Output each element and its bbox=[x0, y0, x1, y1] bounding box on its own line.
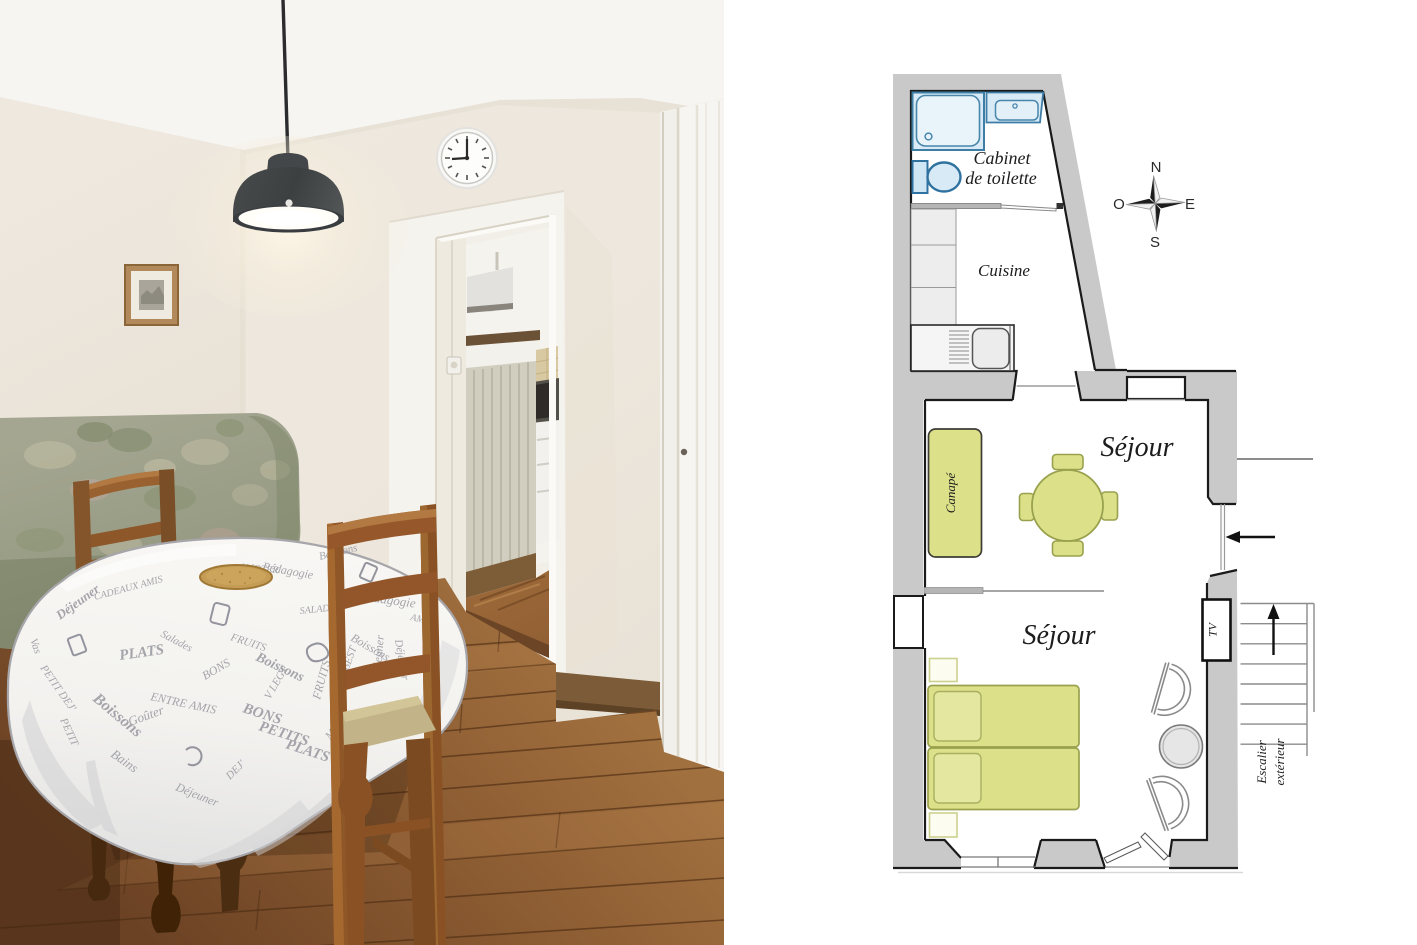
svg-text:O: O bbox=[1113, 196, 1125, 213]
svg-text:S: S bbox=[1150, 234, 1160, 251]
svg-text:E: E bbox=[1185, 196, 1195, 213]
svg-text:TV: TV bbox=[1206, 621, 1220, 637]
svg-text:de toilette: de toilette bbox=[965, 168, 1036, 188]
svg-text:Escalier: Escalier bbox=[1254, 739, 1269, 784]
svg-text:Cabinet: Cabinet bbox=[974, 148, 1032, 168]
svg-text:Séjour: Séjour bbox=[1100, 432, 1173, 463]
svg-text:N: N bbox=[1151, 159, 1162, 176]
svg-text:Cuisine: Cuisine bbox=[978, 261, 1030, 280]
svg-text:Séjour: Séjour bbox=[1022, 620, 1095, 651]
svg-text:Canapé: Canapé bbox=[943, 472, 958, 514]
svg-text:extérieur: extérieur bbox=[1272, 738, 1287, 786]
